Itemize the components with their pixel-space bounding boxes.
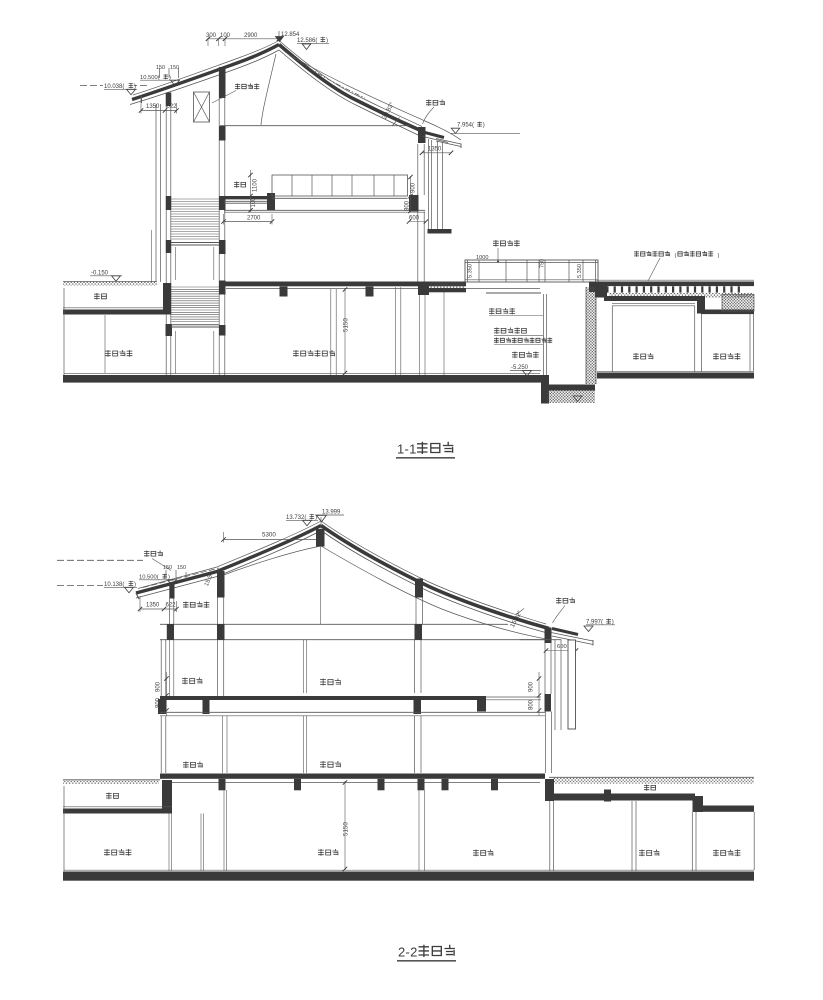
- svg-text:750: 750: [540, 259, 546, 268]
- svg-text:1350: 1350: [146, 104, 160, 110]
- svg-text:1000: 1000: [476, 255, 488, 261]
- svg-text:300: 300: [206, 33, 217, 39]
- svg-text:900: 900: [156, 681, 162, 692]
- svg-text:2-2: 2-2: [398, 945, 418, 960]
- svg-text:900: 900: [411, 182, 417, 193]
- svg-text:150: 150: [156, 65, 165, 71]
- svg-text:5150: 5150: [343, 822, 350, 836]
- svg-text:1100: 1100: [253, 178, 259, 192]
- svg-text:7.954(: 7.954(: [457, 123, 474, 129]
- svg-text:1-1: 1-1: [397, 442, 417, 457]
- svg-text:): ): [718, 253, 720, 259]
- svg-text:800: 800: [405, 200, 411, 211]
- svg-text:2900: 2900: [244, 33, 258, 39]
- svg-text:150: 150: [170, 65, 179, 71]
- svg-text:150: 150: [177, 565, 186, 571]
- svg-text:622: 622: [166, 603, 177, 609]
- svg-text:5.350: 5.350: [577, 264, 583, 278]
- svg-text:900: 900: [529, 681, 535, 692]
- svg-text:): ): [483, 123, 485, 129]
- svg-text:13.999: 13.999: [322, 510, 341, 516]
- svg-text:1350: 1350: [146, 603, 160, 609]
- svg-text:600: 600: [557, 644, 567, 650]
- svg-text:5300: 5300: [262, 532, 276, 539]
- svg-text:1350: 1350: [428, 147, 442, 153]
- svg-text:150: 150: [163, 565, 172, 571]
- svg-text:100: 100: [251, 197, 257, 208]
- svg-text:(: (: [675, 253, 677, 259]
- svg-text:5150: 5150: [343, 318, 350, 332]
- svg-text:800: 800: [529, 699, 535, 710]
- svg-text:5.350: 5.350: [468, 264, 474, 278]
- svg-text:2700: 2700: [247, 216, 261, 222]
